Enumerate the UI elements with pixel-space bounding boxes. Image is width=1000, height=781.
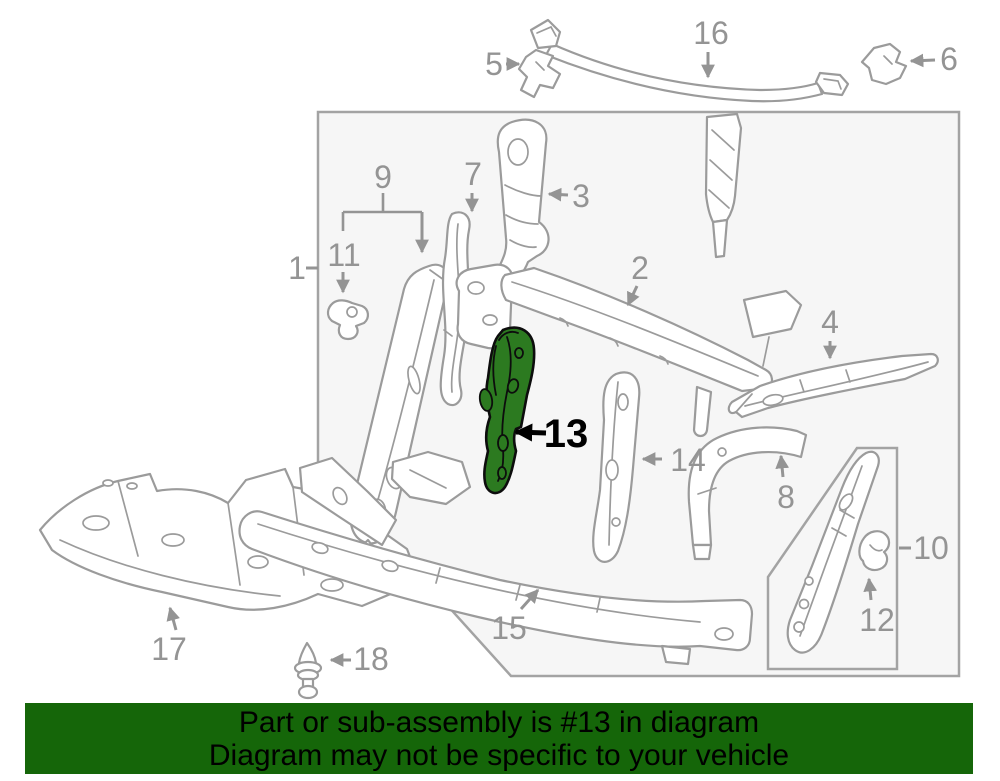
part-label-17: 17 <box>151 631 187 667</box>
leader-3 <box>549 194 568 195</box>
part-label-3: 3 <box>572 178 590 214</box>
part-label-14: 14 <box>670 442 706 478</box>
leader-8 <box>781 456 783 477</box>
part-label-8: 8 <box>777 479 795 515</box>
part-label-11: 11 <box>327 237 360 273</box>
highlight-banner: Part or sub-assembly is #13 in diagram D… <box>25 703 973 774</box>
part-label-1: 1 <box>288 250 306 286</box>
banner-line-2: Diagram may not be specific to your vehi… <box>25 739 973 772</box>
part-label-15: 15 <box>491 610 527 646</box>
part-label-7: 7 <box>464 156 482 192</box>
part-label-6: 6 <box>940 41 958 77</box>
part-label-2: 2 <box>631 250 649 286</box>
part-label-4: 4 <box>821 304 839 340</box>
part-label-16: 16 <box>693 15 729 51</box>
banner-line-1: Part or sub-assembly is #13 in diagram <box>25 703 973 739</box>
leader-6 <box>911 60 935 61</box>
part-label-9: 9 <box>374 159 392 195</box>
part-12-hook-clip <box>859 531 889 570</box>
part-label-13-highlighted: 13 <box>544 412 589 456</box>
leader-17 <box>170 608 176 630</box>
parts-diagram-screenshot: 1 2 3 4 5 6 7 8 9 10 11 12 13 14 15 16 1… <box>0 0 1000 781</box>
leader-13 <box>516 432 546 433</box>
part-18-push-pin <box>295 643 321 698</box>
part-6-clip <box>862 44 906 84</box>
part-16-rod <box>531 20 848 101</box>
parts-diagram: 1 2 3 4 5 6 7 8 9 10 11 12 13 14 15 16 1… <box>0 0 1000 703</box>
part-label-5: 5 <box>485 46 503 82</box>
leader-12 <box>869 579 871 600</box>
part-label-12: 12 <box>859 602 895 638</box>
part-label-18: 18 <box>353 641 389 677</box>
part-label-10: 10 <box>913 530 949 566</box>
